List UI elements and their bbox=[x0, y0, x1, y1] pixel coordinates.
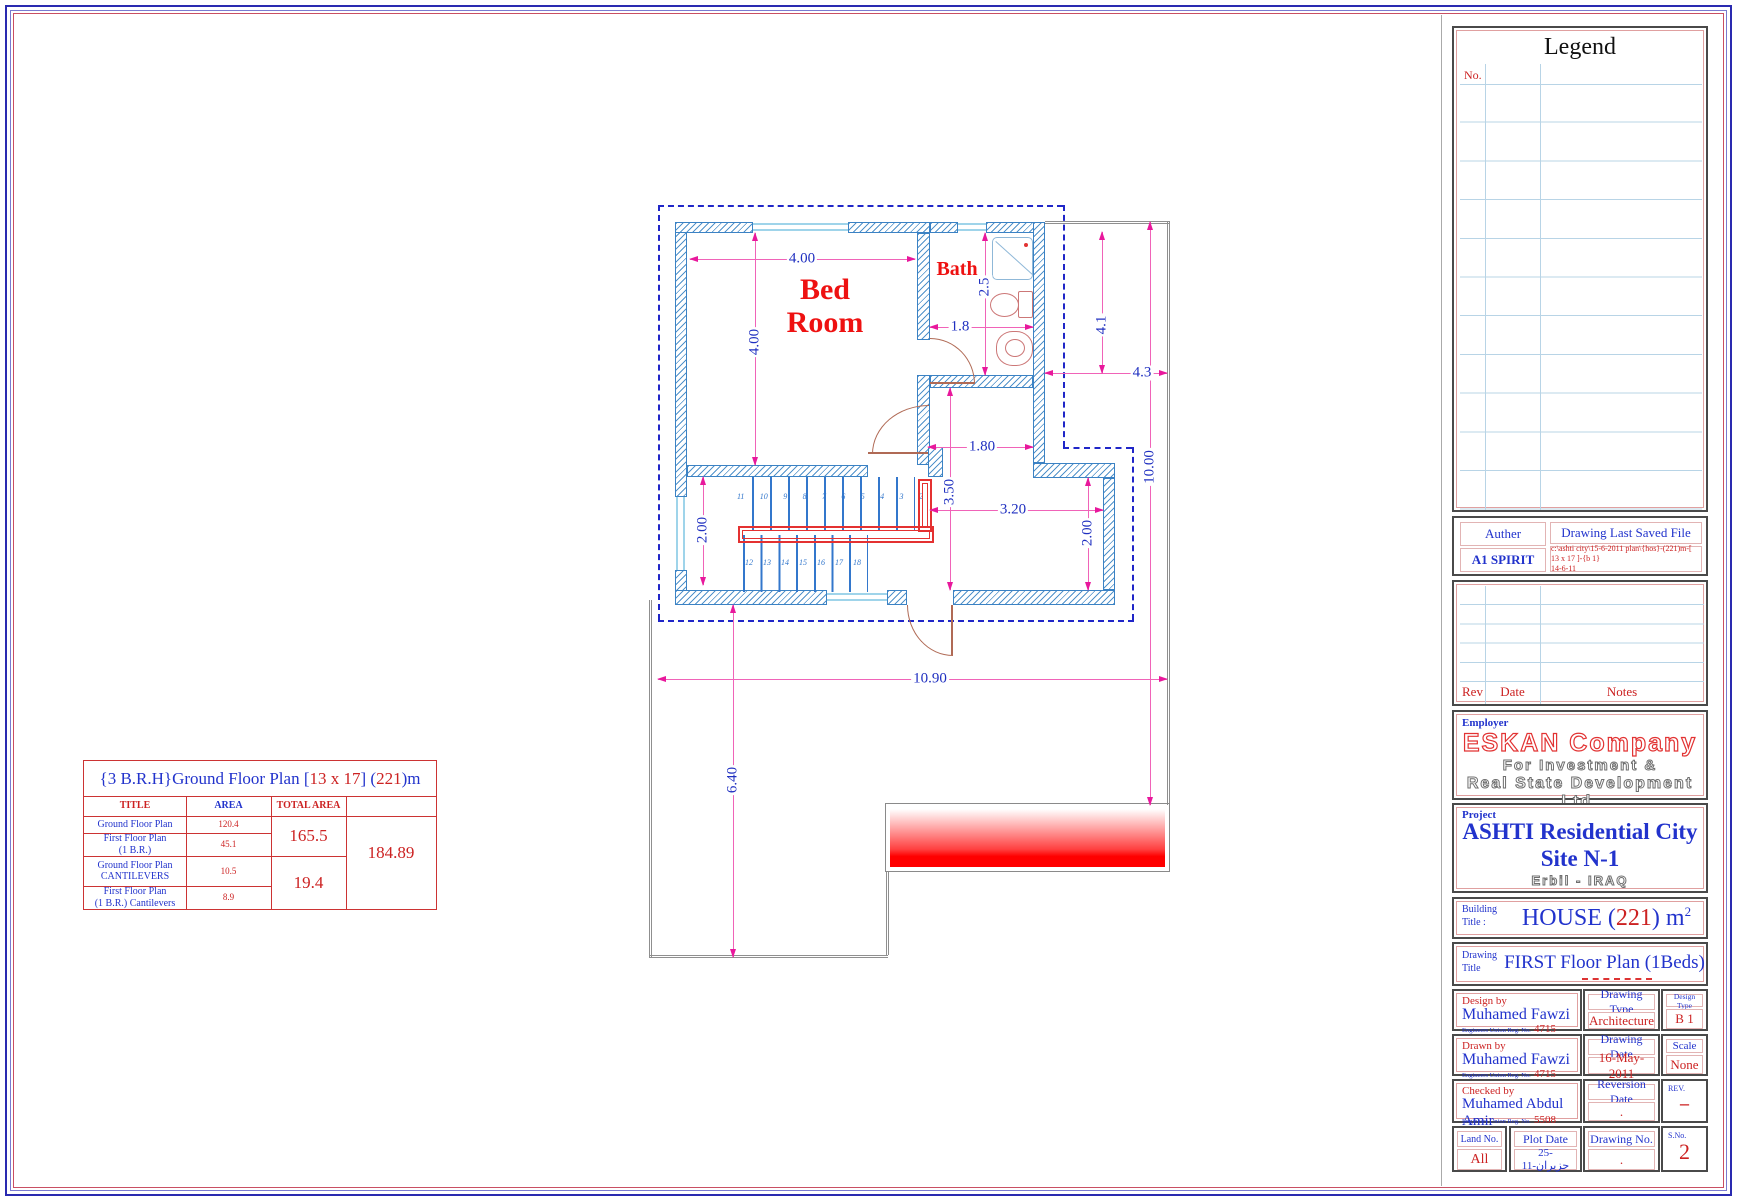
stair-number: 8 bbox=[803, 492, 807, 501]
wall-hall-right bbox=[1103, 478, 1115, 590]
plot-line-right bbox=[1167, 221, 1170, 805]
stair-number: 13 bbox=[763, 558, 771, 567]
legend-title: Legend bbox=[1454, 34, 1706, 61]
stair-treads-upper bbox=[752, 477, 915, 530]
door-arc-bedroom bbox=[872, 405, 929, 454]
sno-box: S.No. 2 bbox=[1661, 1126, 1708, 1172]
area-header-total: TOTAL AREA bbox=[271, 796, 346, 816]
wall-top-bedroom-right bbox=[848, 222, 930, 233]
area-grand-total: 184.89 bbox=[346, 796, 436, 909]
file-value-cell: c:\ashti city\15-6-2011 plan\{hos}-(221)… bbox=[1550, 546, 1702, 572]
wall-bath-right bbox=[1033, 222, 1045, 463]
drawing-sheet: 111098765432 12131415161718 BedRoom Bath bbox=[0, 0, 1737, 1201]
dim-label-bath-door: 1.8 bbox=[949, 320, 972, 335]
drawing-no-value: . bbox=[1588, 1149, 1655, 1170]
door-arc-bath bbox=[930, 338, 975, 384]
wall-bedroom-bottom bbox=[687, 465, 868, 477]
boundary-dashed-top bbox=[658, 205, 1063, 207]
toilet-bowl bbox=[990, 293, 1019, 317]
stair-number: 4 bbox=[880, 492, 884, 501]
stair-number: 12 bbox=[745, 558, 753, 567]
stair-number: 16 bbox=[817, 558, 825, 567]
rev-value: – bbox=[1663, 1093, 1706, 1114]
stair-numbers-upper: 111098765432 bbox=[737, 492, 923, 501]
wall-bottom-mid bbox=[887, 590, 907, 605]
dim-label-upper-right: 4.1 bbox=[1095, 314, 1110, 337]
stair-number: 11 bbox=[737, 492, 744, 501]
dim-line-bath-height bbox=[985, 233, 986, 375]
project-box: Project ASHTI Residential City Site N-1 … bbox=[1452, 803, 1708, 893]
area-row-title: First Floor Plan(1 B.R.) Cantilevers bbox=[84, 886, 186, 909]
employer-label: Employer bbox=[1462, 717, 1508, 729]
stair-number: 10 bbox=[760, 492, 768, 501]
employer-name: ESKAN Company bbox=[1454, 729, 1706, 758]
drawing-type-box: Drawing Type Architecture bbox=[1583, 989, 1660, 1031]
room-label-bedroom: BedRoom bbox=[740, 273, 910, 339]
dim-label-bed-height: 4.00 bbox=[748, 327, 763, 357]
stair-number: 17 bbox=[835, 558, 843, 567]
scale-box: Scale None bbox=[1661, 1034, 1708, 1076]
wall-bottom-right bbox=[953, 590, 1115, 605]
design-by-box: Design by Muhamed Fawzi Engineers Union … bbox=[1452, 989, 1582, 1031]
project-name: ASHTI Residential City bbox=[1454, 819, 1706, 845]
window-bath-top bbox=[958, 223, 986, 231]
drawing-type-value: Architecture bbox=[1588, 1012, 1655, 1029]
wall-top-bath-left bbox=[930, 222, 958, 233]
stair-number: 14 bbox=[781, 558, 789, 567]
door-leaf-entrance bbox=[951, 605, 953, 655]
dim-line-total-height bbox=[1150, 222, 1151, 805]
area-row-value: 8.9 bbox=[186, 886, 271, 909]
area-row-title: Ground Floor Plan bbox=[84, 816, 186, 833]
drawing-no-box: Drawing No. . bbox=[1583, 1126, 1660, 1172]
plot-date-label: Plot Date bbox=[1514, 1131, 1577, 1147]
drawing-type-label: Drawing Type bbox=[1588, 994, 1655, 1010]
wall-step bbox=[1033, 463, 1115, 478]
project-location: Erbil - IRAQ bbox=[1454, 873, 1706, 888]
design-by-name: Muhamed Fawzi bbox=[1462, 1006, 1570, 1024]
plot-line-left bbox=[649, 600, 652, 958]
area-header-area: AREA bbox=[186, 796, 271, 816]
drawn-by-box: Drawn by Muhamed Fawzi Engineers Union R… bbox=[1452, 1034, 1582, 1076]
building-title-box: BuildingTitle : HOUSE (221) m2 bbox=[1452, 897, 1708, 939]
drawing-title-label: DrawingTitle bbox=[1462, 949, 1497, 975]
stair-railing bbox=[738, 526, 934, 543]
area-row-title: Ground Floor PlanCANTILEVERS bbox=[84, 856, 186, 886]
window-left bbox=[676, 497, 685, 570]
stair-number: 18 bbox=[853, 558, 861, 567]
titleblock-divider bbox=[1441, 15, 1442, 1186]
date-header: Date bbox=[1485, 684, 1540, 700]
door-leaf-bath bbox=[930, 382, 974, 384]
author-box: Auther A1 SPIRIT Drawing Last Saved File… bbox=[1452, 516, 1708, 576]
reversion-date-value: . bbox=[1588, 1102, 1655, 1121]
drawing-title-box: DrawingTitle FIRST Floor Plan (1Beds) bbox=[1452, 942, 1708, 986]
plot-date-box: Plot Date 25-حزيران-11 bbox=[1509, 1126, 1582, 1172]
drawing-date-value: 16-May-2011 bbox=[1588, 1057, 1655, 1074]
employer-line2: For Investment & bbox=[1454, 757, 1706, 774]
boundary-dashed-right-upper bbox=[1063, 205, 1065, 447]
door-arc-entrance bbox=[907, 605, 953, 656]
dim-label-hall-right: 2.00 bbox=[1081, 518, 1096, 548]
wall-top-bedroom-left bbox=[675, 222, 753, 233]
drawing-no-label: Drawing No. bbox=[1588, 1131, 1655, 1147]
dim-label-bath-height: 2.5 bbox=[978, 276, 993, 299]
rev-box: REV. – bbox=[1661, 1079, 1708, 1123]
design-type-value: B 1 bbox=[1666, 1009, 1703, 1029]
area-subtotal-2: 19.4 bbox=[271, 856, 346, 909]
dim-label-corridor: 1.80 bbox=[967, 440, 997, 455]
drawing-date-box: Drawing Date 16-May-2011 bbox=[1583, 1034, 1660, 1076]
boundary-dashed-step bbox=[1063, 447, 1132, 449]
area-row-value: 120.4 bbox=[186, 816, 271, 833]
area-table: {3 B.R.H} Ground Floor Plan [13 x 17 ] (… bbox=[83, 760, 437, 910]
dim-label-terrace-height: 6.40 bbox=[726, 765, 741, 795]
revision-box: Rev Date Notes bbox=[1452, 580, 1708, 706]
project-site: Site N-1 bbox=[1454, 846, 1706, 872]
dim-line-upper-right bbox=[1102, 232, 1103, 373]
stair-number: 15 bbox=[799, 558, 807, 567]
legend-box: Legend No. bbox=[1452, 26, 1708, 512]
dim-line-bath-door bbox=[930, 327, 1033, 328]
drawing-title-underline bbox=[1582, 978, 1652, 980]
plot-line-bottom bbox=[649, 955, 888, 958]
checked-by-reg: Engineers Union Reg. No. 5508 bbox=[1462, 1114, 1556, 1126]
employer-box: Employer ESKAN Company For Investment & … bbox=[1452, 710, 1708, 800]
plot-line-right-lower bbox=[886, 872, 889, 955]
author-value-cell: A1 SPIRIT bbox=[1460, 548, 1546, 572]
door-leaf-bedroom bbox=[868, 452, 928, 454]
dim-label-stair-width: 2.00 bbox=[696, 515, 711, 545]
plot-date-value: 25-حزيران-11 bbox=[1514, 1149, 1577, 1170]
wall-bottom-left bbox=[675, 590, 827, 605]
building-title-label: BuildingTitle : bbox=[1462, 903, 1497, 929]
boundary-dashed-right-lower bbox=[1132, 447, 1134, 620]
area-row-value: 10.5 bbox=[186, 856, 271, 886]
stair-number: 3 bbox=[900, 492, 904, 501]
file-label-cell: Drawing Last Saved File bbox=[1550, 522, 1702, 544]
toilet-tank bbox=[1018, 291, 1033, 318]
stair-number: 6 bbox=[841, 492, 845, 501]
stair-railing-return bbox=[918, 479, 932, 532]
dim-label-right-width: 4.3 bbox=[1131, 366, 1154, 381]
reversion-date-box: Reversion Date . bbox=[1583, 1079, 1660, 1123]
stair-number: 7 bbox=[822, 492, 826, 501]
shower-tray bbox=[992, 237, 1033, 280]
reversion-date-label: Reversion Date bbox=[1588, 1084, 1655, 1100]
red-gradient-bar bbox=[885, 803, 1170, 872]
area-row-value: 45.1 bbox=[186, 833, 271, 856]
sink-basin bbox=[1005, 339, 1025, 357]
author-label-cell: Auther bbox=[1460, 522, 1546, 546]
design-type-box: Design Type B 1 bbox=[1661, 989, 1708, 1031]
wall-corner-stub bbox=[928, 447, 943, 477]
window-bottom bbox=[827, 593, 887, 601]
legend-grid bbox=[1460, 84, 1702, 510]
shower-drain-dot bbox=[1024, 243, 1028, 247]
rev-header: Rev bbox=[1460, 684, 1485, 700]
land-no-label: Land No. bbox=[1457, 1131, 1502, 1147]
land-no-box: Land No. All bbox=[1452, 1126, 1507, 1172]
wall-left-upper bbox=[675, 222, 687, 497]
checked-by-box: Checked by Muhamed Abdul Amir Engineers … bbox=[1452, 1079, 1582, 1123]
boundary-dashed-bottom bbox=[658, 620, 1134, 622]
design-type-label: Design Type bbox=[1666, 994, 1703, 1007]
red-gradient-fill bbox=[890, 808, 1165, 867]
drawing-title-value: FIRST Floor Plan (1Beds) bbox=[1502, 952, 1707, 974]
area-row-title: First Floor Plan(1 B.R.) bbox=[84, 833, 186, 856]
scale-value: None bbox=[1666, 1055, 1703, 1074]
boundary-dashed-left bbox=[658, 205, 660, 620]
rev-label: REV. bbox=[1668, 1084, 1685, 1093]
area-table-title: {3 B.R.H} Ground Floor Plan [13 x 17 ] (… bbox=[84, 761, 436, 796]
sno-value: 2 bbox=[1663, 1139, 1706, 1165]
floor-plan: 111098765432 12131415161718 BedRoom Bath bbox=[585, 180, 1195, 970]
notes-header: Notes bbox=[1540, 684, 1704, 700]
dim-label-total-width: 10.90 bbox=[911, 672, 949, 687]
stair-number: 5 bbox=[861, 492, 865, 501]
legend-column-line bbox=[1485, 64, 1486, 510]
revision-grid bbox=[1460, 586, 1704, 682]
sink bbox=[996, 331, 1033, 366]
dim-label-bed-width: 4.00 bbox=[787, 252, 817, 267]
area-subtotal-1: 165.5 bbox=[271, 816, 346, 856]
land-no-value: All bbox=[1457, 1149, 1502, 1170]
window-bedroom-top bbox=[753, 223, 848, 231]
stair-number: 9 bbox=[783, 492, 787, 501]
area-header-title: TITLE bbox=[84, 796, 186, 816]
stair-numbers-lower: 12131415161718 bbox=[745, 558, 861, 567]
dim-label-total-height: 10.00 bbox=[1143, 448, 1158, 486]
drawn-by-name: Muhamed Fawzi bbox=[1462, 1051, 1570, 1069]
scale-label: Scale bbox=[1666, 1039, 1703, 1053]
dim-label-hall-height: 3.50 bbox=[943, 477, 958, 507]
dim-label-hall-width: 3.20 bbox=[998, 503, 1028, 518]
legend-column-line bbox=[1540, 64, 1541, 510]
building-title-value: HOUSE (221) m2 bbox=[1509, 904, 1704, 932]
legend-no-label: No. bbox=[1464, 68, 1482, 83]
